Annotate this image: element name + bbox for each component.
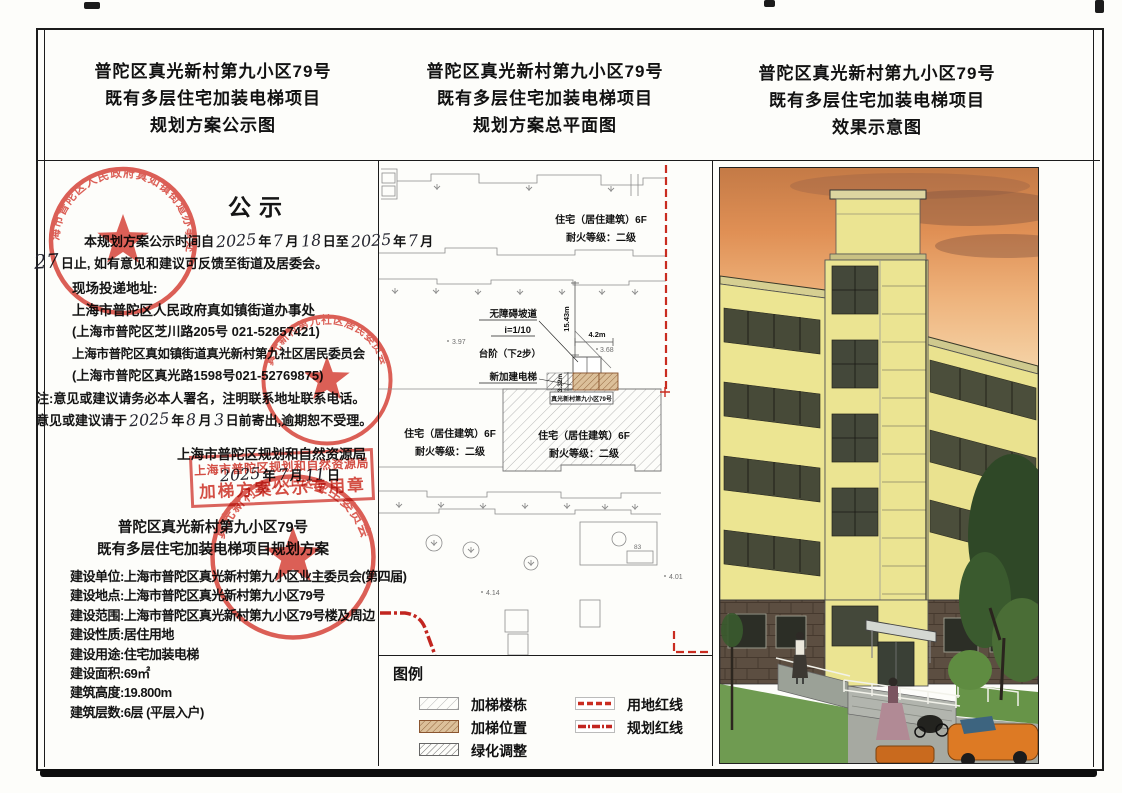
legend-swatch-planning-red-line: [575, 720, 615, 733]
planning-red-line: [380, 613, 435, 655]
orange-car-partial: [876, 746, 934, 763]
title-line: 普陀区真光新村第九小区79号: [712, 60, 1042, 87]
legend-item-label: 加梯楼栋: [471, 695, 527, 715]
title-line: 既有多层住宅加装电梯项目: [48, 85, 378, 112]
building-rendering: [720, 168, 1038, 763]
legend-swatch-elevator-position: [419, 720, 459, 733]
middle-panel-title: 普陀区真光新村第九小区79号 既有多层住宅加装电梯项目 规划方案总平面图: [378, 58, 712, 139]
building-tag-label: 真光新村第九小区79号: [551, 395, 612, 403]
svg-text:4.14: 4.14: [486, 590, 500, 597]
legend-item-label: 规划红线: [627, 718, 683, 738]
dimension-label: 15.43m: [562, 306, 571, 332]
handwritten-month: 7: [273, 233, 284, 250]
handwritten-year: 2025: [129, 411, 170, 430]
scan-edge-bar: [40, 769, 1097, 777]
legend-swatch-greenery: [419, 743, 459, 756]
legend: 图例 加梯楼栋 加梯位置 绿化调整 用地红线 规划红线: [379, 655, 712, 765]
handwritten-day: 3: [213, 412, 224, 429]
title-line: 规划方案公示图: [48, 112, 378, 139]
street-office-round-stamp: 上海市普陀区人民政府真如镇街道办事处: [38, 156, 208, 326]
legend-swatch-land-red-line: [575, 697, 615, 710]
scan-artifact: [1095, 0, 1104, 13]
title-line: 普陀区真光新村第九小区79号: [48, 58, 378, 85]
legend-title: 图例: [393, 663, 423, 684]
svg-text:4.01: 4.01: [669, 574, 683, 581]
handwritten-month: 8: [186, 412, 197, 429]
legend-item-label: 加梯位置: [471, 718, 527, 738]
callout-labels: 无障碍坡道 i=1/10 台阶（下2步） 新加建电梯: [479, 308, 541, 383]
scan-artifact: [84, 2, 100, 9]
svg-text:耐火等级：二级: 耐火等级：二级: [566, 231, 637, 244]
panel-divider-2: [712, 160, 713, 766]
stamp-star: [97, 214, 148, 263]
detail-line: 建设面积:69㎡: [70, 664, 407, 683]
svg-text:3.68: 3.68: [600, 347, 614, 354]
title-line: 既有多层住宅加装电梯项目: [712, 87, 1042, 114]
inner-border-right: [1093, 28, 1094, 767]
svg-text:i=1/10: i=1/10: [504, 325, 531, 336]
detail-line: 建筑层数:6层 (平层入户): [70, 703, 407, 722]
notice-heading: 公示: [228, 188, 290, 222]
handwritten-year: 2025: [216, 232, 257, 251]
legend-item-label: 绿化调整: [471, 741, 527, 761]
scan-artifact: [764, 0, 775, 7]
stamp-star: [304, 356, 349, 399]
svg-text:住宅（居住建筑）6F: 住宅（居住建筑）6F: [538, 429, 630, 442]
title-line: 既有多层住宅加装电梯项目: [378, 85, 712, 112]
svg-text:新加建电梯: 新加建电梯: [489, 371, 537, 383]
land-red-line: [660, 165, 712, 654]
svg-text:无障碍坡道: 无障碍坡道: [488, 308, 537, 320]
title-line: 效果示意图: [712, 114, 1042, 141]
rendering-image-frame: [719, 167, 1039, 764]
site-plan-drawing: 真光新村第九小区79号 15.43m 4.2m 3.32m 3.68 3.97 …: [379, 161, 712, 655]
title-line: 普陀区真光新村第九小区79号: [378, 58, 712, 85]
svg-text:台阶（下2步）: 台阶（下2步）: [479, 348, 541, 360]
left-building-wing: [720, 276, 825, 600]
svg-text:住宅（居住建筑）6F: 住宅（居住建筑）6F: [555, 213, 647, 226]
svg-text:3.97: 3.97: [452, 339, 466, 346]
handwritten-day: 18: [300, 232, 321, 249]
svg-text:耐火等级：二级: 耐火等级：二级: [549, 447, 620, 460]
svg-text:耐火等级：二级: 耐火等级：二级: [415, 445, 486, 458]
owners-committee-round-stamp: 真光新村第九小区业主委员会: [198, 462, 388, 652]
legend-item-label: 用地红线: [627, 695, 683, 715]
parcel-number: 83: [634, 544, 642, 551]
legend-swatch-building: [419, 697, 459, 710]
title-line: 规划方案总平面图: [378, 112, 712, 139]
stamp-star: [264, 527, 321, 582]
svg-text:住宅（居住建筑）6F: 住宅（居住建筑）6F: [404, 427, 496, 440]
left-panel-title: 普陀区真光新村第九小区79号 既有多层住宅加装电梯项目 规划方案公示图: [48, 58, 378, 139]
dimension-label: 4.2m: [588, 330, 605, 339]
right-panel-title: 普陀区真光新村第九小区79号 既有多层住宅加装电梯项目 效果示意图: [712, 60, 1042, 141]
scanned-notice-sheet: 普陀区真光新村第九小区79号 既有多层住宅加装电梯项目 规划方案公示图 普陀区真…: [0, 0, 1122, 793]
new-elevator-tower: [825, 190, 928, 600]
detail-line: 建筑高度:19.800m: [70, 683, 407, 702]
